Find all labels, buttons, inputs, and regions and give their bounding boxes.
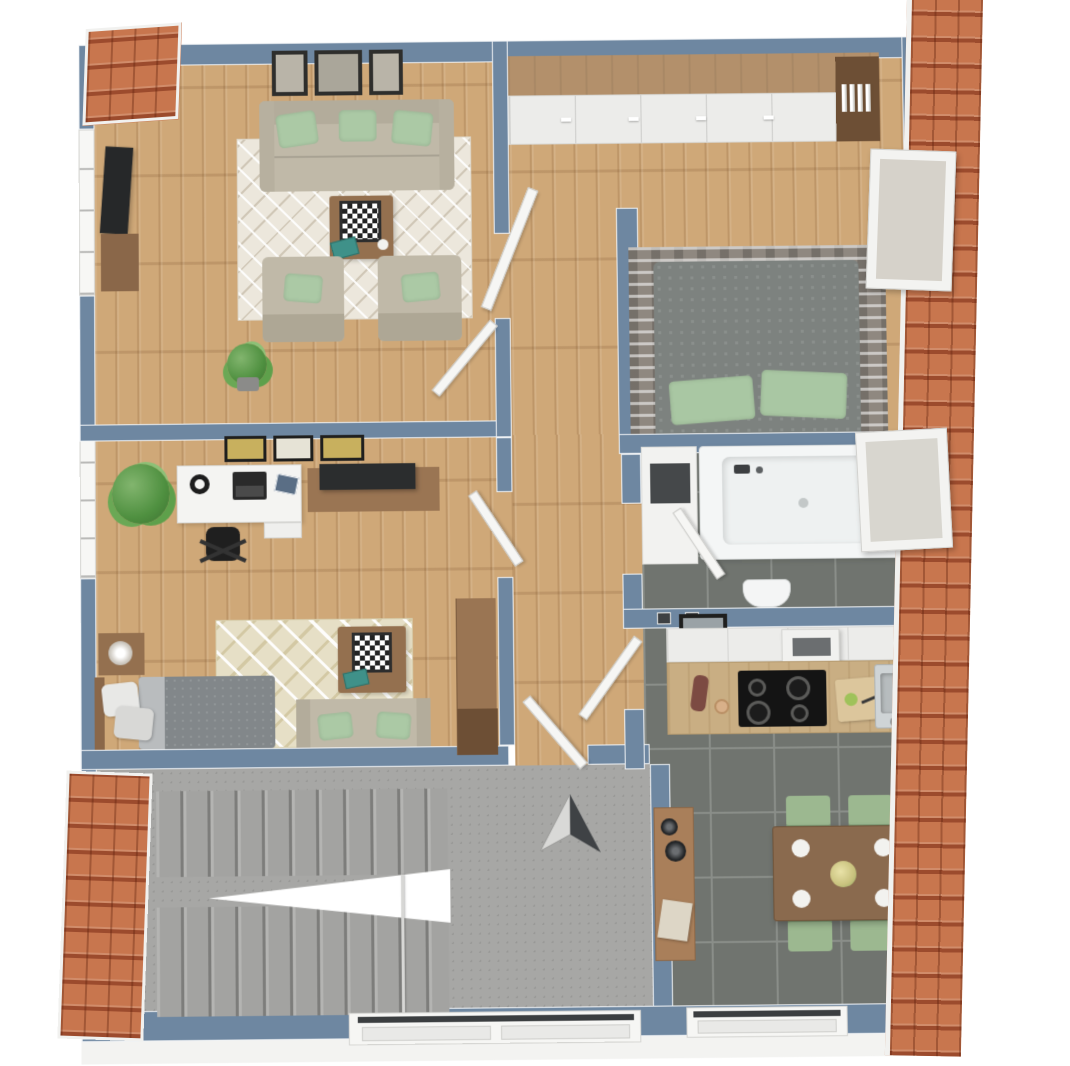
vase-2 [665,840,686,861]
sofa-pillow-3 [391,110,434,147]
tv-screen [100,146,134,234]
lamp [108,641,132,665]
armchair-right-back [378,312,462,341]
wall-hall-left-low2 [497,577,515,746]
office-plant [112,464,170,524]
oil-bottle [690,674,709,712]
plate-3 [792,890,810,908]
office-picture-2 [273,435,313,461]
wall-hall-left-mid [495,318,512,437]
armchair-right-pillow [401,272,441,303]
office-drawer-unit [264,522,302,538]
tv-lowboard-living [101,234,139,292]
office-tv-lowboard [307,467,439,512]
roof-bottom-left [57,771,152,1042]
desk [177,464,302,523]
window-office-left [80,429,97,579]
loveseat-pillow-1 [317,711,354,741]
stairwell-window-pane-1 [362,1026,491,1042]
dining-window-slit [693,1010,840,1018]
desk-magazine [274,473,299,495]
loveseat-pillow-2 [376,711,412,740]
loveseat-arm-right [416,698,430,746]
chessboard [339,200,381,242]
wardrobe-handle-1 [561,118,571,122]
window-living-left [79,129,95,295]
burner-small-2 [790,704,808,722]
wall-hall-left-low1 [496,437,513,492]
bedroom-roof-window-glass [876,159,946,281]
sofa-pillow-2 [339,110,377,142]
stairwell-window [349,1010,642,1046]
floor-plan-scene: McGrundriss [0,0,1070,1066]
office-side-table [338,626,407,693]
stairwell-window-slit [358,1014,634,1023]
shelf-books [842,84,874,112]
wardrobe-handle-4 [764,116,774,120]
office-wardrobe [456,598,498,755]
roof-top-left [82,22,181,125]
bathroom-roof-window-glass [865,438,942,542]
living-picture-3 [369,49,403,95]
white-ball [377,239,388,250]
armchair-left [262,256,344,342]
nightstand [98,633,144,676]
cooktop [738,670,827,727]
bathroom-niche-wall [641,446,699,564]
north-arrow [538,794,603,855]
sofa-arm-right [439,99,455,190]
sideboard [653,807,695,961]
office-chessboard [352,632,392,673]
laptop-keyboard [236,486,264,497]
bedroom-roof-window [866,149,957,292]
office-picture-1 [224,436,266,462]
sofa-arm-left [259,101,274,192]
sofa-pillow-1 [275,110,319,149]
living-picture-2 [314,50,362,96]
sofa-seat-line [274,154,439,158]
wall-left-b [79,295,95,428]
wardrobe-handle-2 [629,117,639,121]
office-tv [319,463,415,490]
dining-chair-3 [788,919,833,952]
sofa [259,99,454,192]
coffee-table [329,195,393,259]
double-bed [653,260,861,434]
apple [844,692,858,706]
office-picture-3 [320,435,364,461]
wardrobe-fronts [508,92,836,145]
wardrobe-handle-3 [696,116,706,120]
bed-pillow-2 [113,705,154,741]
range-hood-vent [792,638,830,656]
office-chair [198,523,248,571]
dining-window [686,1006,848,1038]
dining-chair-2 [848,795,893,828]
armchair-right [378,255,462,341]
living-picture-1 [272,50,308,96]
bedroom-shelf [835,56,880,141]
flower-centerpiece [830,861,857,888]
single-bed [94,676,275,750]
bed-green-pillow-1 [668,375,755,425]
bed-green-pillow-2 [760,370,847,419]
living-plant-pot [237,377,259,391]
plate-1 [792,839,810,857]
office-wardrobe-end [458,708,499,755]
wardrobe-top [508,52,880,95]
toilet [743,579,791,608]
wall-hall-bath-1 [621,454,642,504]
burner-large-1 [786,676,810,700]
stairwell-window-pane-2 [501,1024,630,1040]
wall-hall-kitchen [624,709,645,770]
burner-large-2 [746,701,770,725]
stairs-upper-flight [156,788,448,877]
office-teal-book [343,668,370,689]
burner-small-1 [748,678,766,696]
armchair-left-back [263,314,345,343]
loveseat [296,698,431,748]
napkin-stack [657,899,692,941]
cup [714,699,729,714]
niche-square-1 [657,612,671,624]
apartment-plan: McGrundriss [78,23,937,1066]
stairs-lower-flight [157,905,450,1018]
bathtub-drain [798,498,808,508]
bathroom-roof-window [855,428,953,553]
armchair-left-pillow [283,273,323,304]
dining-chair-1 [786,795,831,828]
bathroom-niche [650,463,690,503]
bathtub-handle [756,466,763,473]
dining-window-pane [698,1019,837,1034]
headphones [190,474,210,494]
bathtub-faucet [734,465,750,474]
laptop [233,472,267,500]
vase-1 [661,818,678,835]
loveseat-arm-left [296,699,310,747]
